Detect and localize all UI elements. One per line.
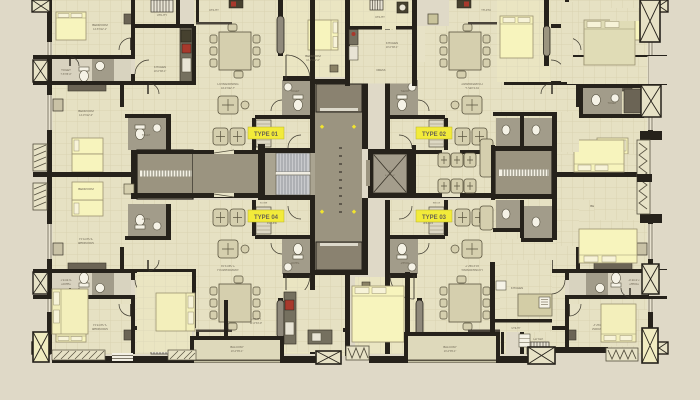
svg-text:TOILET: TOILET <box>607 101 616 105</box>
svg-text:UTILITY: UTILITY <box>251 317 262 321</box>
svg-text:13'-2"X5'-1": 13'-2"X5'-1" <box>444 350 457 353</box>
svg-text:TYPE 01: TYPE 01 <box>254 132 279 138</box>
svg-text:DRESS: DRESS <box>377 68 386 72</box>
svg-text:BEDROOM: BEDROOM <box>78 109 94 113</box>
svg-text:KITCHEN: KITCHEN <box>154 65 166 69</box>
svg-text:TYPE 02: TYPE 02 <box>422 132 447 138</box>
svg-text:TYPE 03: TYPE 03 <box>422 215 447 221</box>
svg-text:6'-6"X5'-6": 6'-6"X5'-6" <box>385 175 395 177</box>
svg-text:10'-0"X8'-1": 10'-0"X8'-1" <box>386 46 399 49</box>
svg-text:14'-6"X12'-1": 14'-6"X12'-1" <box>93 28 107 31</box>
svg-text:TOILET: TOILET <box>290 89 299 93</box>
svg-text:14'-0"X12'-0": 14'-0"X12'-0" <box>79 114 93 117</box>
svg-text:BEDROOM: BEDROOM <box>305 54 321 58</box>
svg-text:7'-6"X5'-0": 7'-6"X5'-0" <box>60 73 71 76</box>
svg-text:LIFT: LIFT <box>387 169 393 173</box>
svg-text:13'-2"X5'-1": 13'-2"X5'-1" <box>231 350 244 353</box>
svg-text:UTILITY: UTILITY <box>512 327 521 330</box>
svg-text:UTILITY: UTILITY <box>209 8 219 12</box>
svg-text:16'-4"X22'-7": 16'-4"X22'-7" <box>221 87 235 90</box>
svg-text:11'-2"X12'-0": 11'-2"X12'-0" <box>306 59 320 62</box>
svg-text:BALCONY: BALCONY <box>443 345 457 349</box>
svg-text:TOILET: TOILET <box>142 134 151 137</box>
svg-text:TYPE 04: TYPE 04 <box>254 215 279 221</box>
svg-text:UTILITY: UTILITY <box>157 13 168 17</box>
svg-text:BEDROOM: BEDROOM <box>92 23 108 27</box>
svg-text:UTILITY: UTILITY <box>375 15 385 19</box>
svg-text:TOILET: TOILET <box>61 68 71 72</box>
svg-text:LIVING/DINING: LIVING/DINING <box>217 82 239 86</box>
svg-text:10'-0"X8'-1": 10'-0"X8'-1" <box>154 70 167 73</box>
svg-text:BEDROOM: BEDROOM <box>78 187 94 191</box>
svg-text:BALCONY: BALCONY <box>230 345 244 349</box>
svg-text:11'-0"X3'-0": 11'-0"X3'-0" <box>250 322 262 325</box>
svg-text:KITCHEN: KITCHEN <box>386 41 398 45</box>
svg-text:KITCHEN: KITCHEN <box>511 286 523 290</box>
